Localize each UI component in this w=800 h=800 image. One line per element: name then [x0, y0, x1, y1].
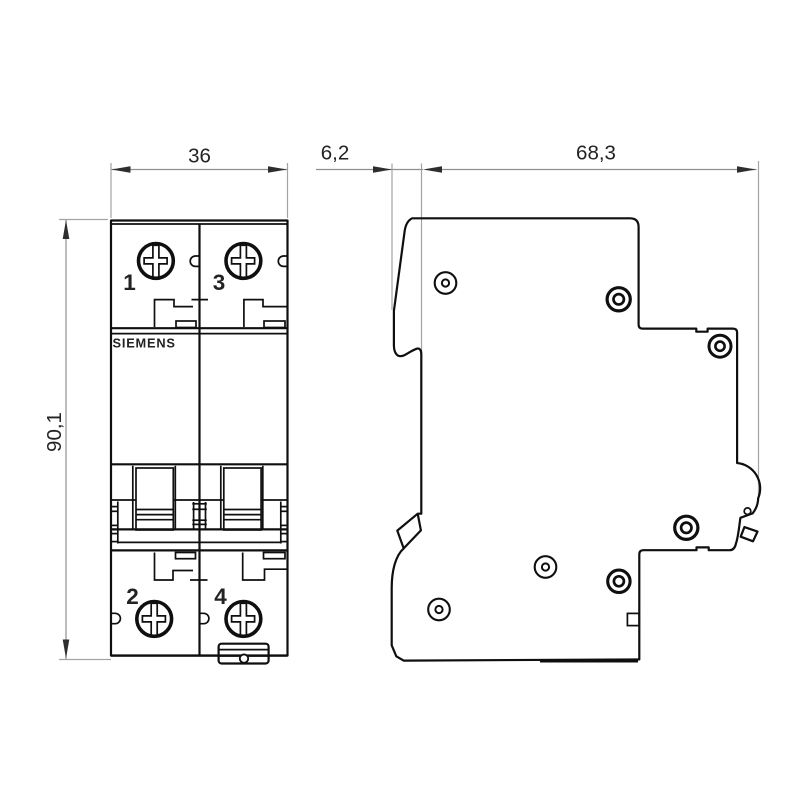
svg-text:90,1: 90,1 [43, 412, 66, 452]
svg-text:3: 3 [213, 270, 226, 295]
svg-text:4: 4 [214, 584, 227, 609]
svg-text:1: 1 [123, 270, 136, 295]
svg-text:SIEMENS: SIEMENS [113, 336, 176, 351]
svg-text:2: 2 [126, 584, 139, 609]
svg-text:6,2: 6,2 [321, 142, 350, 165]
svg-text:68,3: 68,3 [576, 142, 616, 165]
svg-text:36: 36 [188, 145, 211, 168]
